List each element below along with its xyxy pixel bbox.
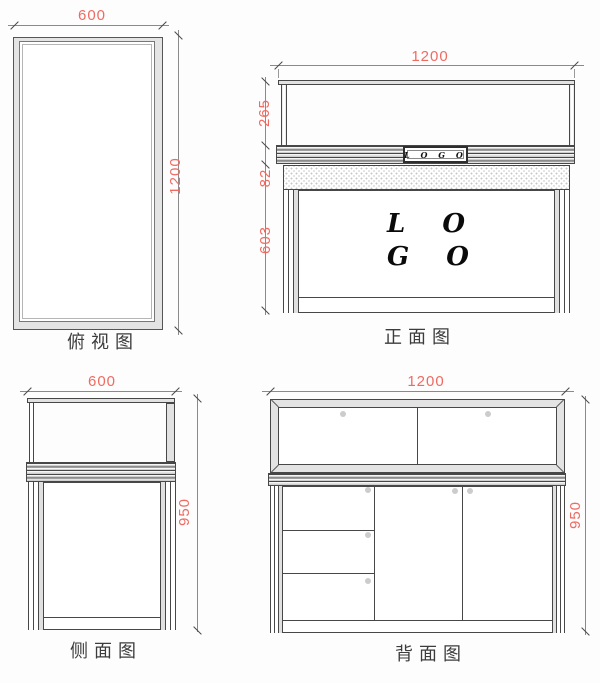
handle-dot (452, 488, 458, 494)
view-label-back: 背面图 (383, 644, 479, 664)
cabinet-post-left (270, 486, 283, 633)
kick-line (283, 620, 552, 621)
handle-dot (467, 488, 473, 494)
drawer-column-divider (374, 486, 375, 620)
handle-dot (340, 411, 346, 417)
technical-drawing-sheet: 600 1200 俯视图 1200 265 82 603 (0, 0, 600, 683)
louver-band (268, 473, 566, 486)
dim-label-back-height: 950 (568, 493, 584, 537)
handle-dot (365, 487, 371, 493)
dim-label-back-width: 1200 (398, 374, 454, 390)
dimension-line (262, 391, 574, 392)
door-divider (462, 486, 463, 620)
drawer-divider (283, 530, 374, 531)
cabinet-body (270, 486, 565, 633)
back-view: 1200 950 背面图 (0, 0, 600, 683)
handle-dot (365, 578, 371, 584)
drawer-divider (283, 573, 374, 574)
cabinet-post-right (552, 486, 565, 633)
sliding-panel-divider (417, 407, 418, 465)
handle-dot (365, 532, 371, 538)
handle-dot (485, 411, 491, 417)
dimension-line (585, 396, 586, 635)
